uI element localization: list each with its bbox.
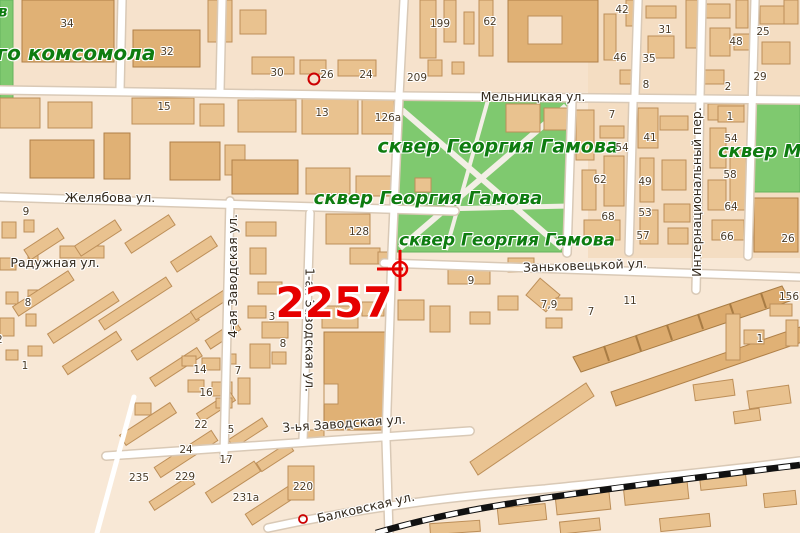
street-label: Мельницкая ул. bbox=[481, 91, 586, 104]
building-number: 11 bbox=[623, 296, 636, 307]
street-label: 4-ая Заводская ул. bbox=[227, 214, 240, 338]
building-number: 34 bbox=[60, 19, 73, 30]
building-number: 7 bbox=[235, 366, 242, 377]
street-label: Радужная ул. bbox=[10, 257, 99, 270]
building-number: 54 bbox=[615, 143, 628, 154]
building-number: 66 bbox=[720, 232, 733, 243]
building-number: 126а bbox=[375, 113, 401, 124]
building-number: 229 bbox=[175, 472, 195, 483]
building-number: 1 bbox=[727, 112, 734, 123]
building-number: 58 bbox=[723, 170, 736, 181]
building-number: 26 bbox=[781, 234, 794, 245]
building-number: 24 bbox=[359, 70, 372, 81]
building-number: 9 bbox=[468, 276, 475, 287]
building-number: 7 bbox=[588, 307, 595, 318]
building-number: 54 bbox=[724, 134, 737, 145]
building-number: 41 bbox=[643, 133, 656, 144]
building-number: 128 bbox=[349, 227, 369, 238]
building-number: 17 bbox=[219, 455, 232, 466]
building-number: 64 bbox=[724, 202, 737, 213]
park-label-gamova-3: сквер Георгия Гамова bbox=[399, 233, 615, 250]
building-number: 62 bbox=[483, 17, 496, 28]
building-number: 1 bbox=[22, 361, 29, 372]
building-number: 8 bbox=[643, 80, 650, 91]
building-number: 22 bbox=[194, 420, 207, 431]
building-number: 30 bbox=[270, 68, 283, 79]
building-number: 1 bbox=[757, 334, 764, 345]
building-number: 8 bbox=[280, 339, 287, 350]
building-number: 9 bbox=[23, 207, 30, 218]
park-label-cut: в bbox=[0, 5, 8, 20]
park-label-gamova-1: сквер Георгия Гамова bbox=[377, 138, 618, 157]
building-number: 13 bbox=[315, 108, 328, 119]
building-number: 235 bbox=[129, 473, 149, 484]
building-number: 49 bbox=[638, 177, 651, 188]
map-graphics bbox=[0, 0, 800, 533]
building-number: 156 bbox=[779, 292, 799, 303]
map-canvas[interactable]: вго комсомоласквер Георгия Гамовасквер Г… bbox=[0, 0, 800, 533]
building-number: 220 bbox=[293, 482, 313, 493]
building-number: 26 bbox=[320, 70, 333, 81]
building-number: 7 bbox=[609, 110, 616, 121]
park-label-gamova-2: сквер Георгия Гамова bbox=[314, 190, 543, 208]
building-number: 15 bbox=[157, 102, 170, 113]
park-label-komsomola: го комсомола bbox=[0, 43, 155, 63]
building-number: 53 bbox=[638, 208, 651, 219]
building-number: 35 bbox=[642, 54, 655, 65]
building-number: 48 bbox=[729, 37, 742, 48]
building-number: 25 bbox=[756, 27, 769, 38]
building-number: 68 bbox=[601, 212, 614, 223]
building-number: 57 bbox=[636, 231, 649, 242]
building-number: 2 bbox=[725, 82, 732, 93]
building-number: 231а bbox=[233, 493, 259, 504]
building-number: 46 bbox=[613, 53, 626, 64]
highlight-number: 2257 bbox=[276, 282, 393, 324]
street-label: Желябова ул. bbox=[65, 192, 155, 205]
building-number: 199 bbox=[430, 19, 450, 30]
building-number: 2 bbox=[0, 335, 3, 346]
building-number: 7,9 bbox=[541, 300, 558, 311]
building-number: 5 bbox=[228, 425, 235, 436]
park-label-m-cut: сквер М bbox=[718, 143, 800, 161]
building-number: 32 bbox=[160, 47, 173, 58]
street-label: Интернациональный пер. bbox=[691, 107, 704, 277]
building-number: 31 bbox=[658, 25, 671, 36]
building-number: 16 bbox=[199, 388, 212, 399]
building-number: 8 bbox=[25, 298, 32, 309]
building-number: 62 bbox=[593, 175, 606, 186]
building-number: 3 bbox=[269, 312, 276, 323]
building-number: 14 bbox=[193, 365, 206, 376]
building-number: 29 bbox=[753, 72, 766, 83]
building-number: 209 bbox=[407, 73, 427, 84]
building-number: 42 bbox=[615, 5, 628, 16]
building-number: 24 bbox=[179, 445, 192, 456]
